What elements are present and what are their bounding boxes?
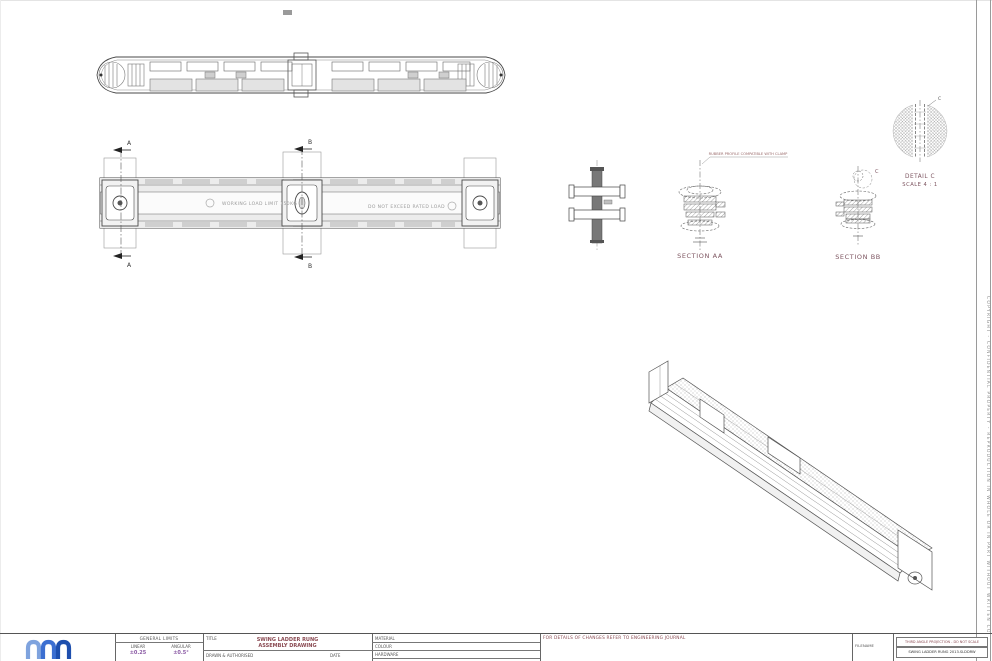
front-view: WORKING LOAD LIMIT 150KG DO NOT EXCEED R…: [100, 139, 500, 270]
detail-c-view: C DETAIL C SCALE 4 : 1: [893, 96, 947, 188]
section-b-label-top: B: [308, 139, 312, 146]
material-rule-1: [372, 642, 540, 643]
section-aa-note: RUBBER PROFILE COMPATIBLE WITH CLAMP: [709, 152, 788, 156]
detail-c-label: DETAIL C: [905, 174, 935, 180]
filename-label: FILENAME: [855, 643, 874, 648]
material-rule-3: [372, 658, 540, 659]
colour-label: COLOUR: [375, 644, 392, 649]
angular-label: ANGULAR: [161, 644, 201, 649]
changes-note: FOR DETAILS OF CHANGES REFER TO ENGINEER…: [543, 636, 685, 641]
section-bb-view: C SECTION BB: [835, 166, 881, 261]
angular-value: ±0.5°: [161, 650, 201, 656]
title-rule: [203, 650, 372, 651]
fold-mark: [283, 10, 292, 15]
section-aa-label: SECTION AA: [677, 252, 723, 260]
hardware-label: HARDWARE: [375, 652, 398, 657]
tb-divider-3: [372, 634, 373, 661]
isometric-view: [649, 361, 932, 590]
projection-note: THIRD ANGLE PROJECTION - DO NOT SCALE: [897, 640, 987, 644]
filename-value: SWING LADDER RUNG 2013.SLDDRW: [897, 650, 987, 654]
end-view: [569, 160, 625, 250]
section-aa-view: RUBBER PROFILE COMPATIBLE WITH CLAMP SEC…: [677, 152, 788, 260]
drawn-authorised-label: DRAWN & AUTHORISED: [206, 653, 253, 658]
section-a-label-bottom: A: [127, 262, 132, 269]
tb-divider-4: [540, 634, 541, 661]
detail-c-scale: SCALE 4 : 1: [902, 182, 937, 188]
section-a-label-top: A: [127, 140, 132, 147]
linear-label: LINEAR: [119, 644, 157, 649]
general-limits-rule: [115, 642, 203, 643]
date-label: DATE: [330, 653, 340, 658]
section-b-label-bottom: B: [308, 263, 312, 270]
engraved-text-right: DO NOT EXCEED RATED LOAD: [368, 204, 445, 210]
brand-logo: [24, 638, 84, 660]
linear-value: ±0.25: [119, 650, 157, 656]
title-block: GENERAL LIMITS LINEAR ±0.25 ANGULAR ±0.5…: [0, 633, 992, 661]
drawing-sheet: COPYRIGHT - CONFIDENTIAL PROPERTY - REPR…: [0, 0, 992, 661]
top-plan-view: [97, 53, 505, 97]
material-rule-2: [372, 650, 540, 651]
section-bb-label: SECTION BB: [835, 253, 881, 261]
engraved-text-left: WORKING LOAD LIMIT 150KG: [222, 201, 297, 207]
tb-divider-6: [893, 634, 894, 661]
drawing-title-line2: ASSEMBLY DRAWING: [203, 643, 372, 649]
detail-c-arc-marker: C: [938, 96, 941, 102]
drawing-views-canvas: WORKING LOAD LIMIT 150KG DO NOT EXCEED R…: [0, 0, 992, 633]
general-limits-header: GENERAL LIMITS: [115, 636, 203, 641]
detail-c-callout-marker: C: [875, 169, 879, 175]
material-label: MATERIAL: [375, 636, 395, 641]
tb-divider-5: [852, 634, 853, 661]
